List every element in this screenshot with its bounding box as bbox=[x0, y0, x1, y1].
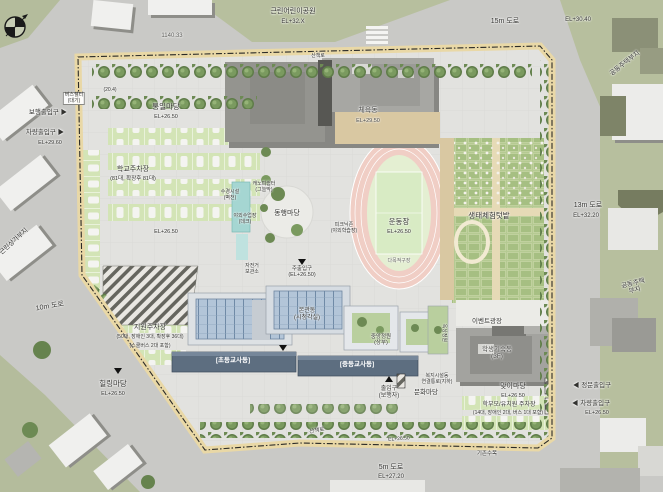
gate-hatch bbox=[397, 374, 405, 388]
striped-canopy bbox=[103, 266, 198, 325]
plaza-tree bbox=[291, 224, 303, 236]
site-plan-drawing bbox=[0, 0, 663, 492]
plaza-tree bbox=[260, 204, 268, 212]
eco-garden bbox=[452, 138, 544, 303]
water-deck bbox=[236, 234, 248, 260]
track-side-deck bbox=[440, 138, 454, 300]
plaza-tree bbox=[265, 233, 275, 243]
running-track bbox=[350, 137, 448, 289]
water-feature-shape bbox=[232, 182, 250, 232]
plaza-tree bbox=[261, 175, 271, 185]
together-plaza-paving bbox=[261, 186, 313, 238]
site-plan-canvas: 15m 도로EL+30.4013m 도로EL+32.2010m 도로5m 도로E… bbox=[0, 0, 663, 492]
event-plaza-paving bbox=[456, 300, 548, 326]
plaza-tree bbox=[271, 187, 285, 201]
plaza-tree bbox=[261, 147, 271, 157]
